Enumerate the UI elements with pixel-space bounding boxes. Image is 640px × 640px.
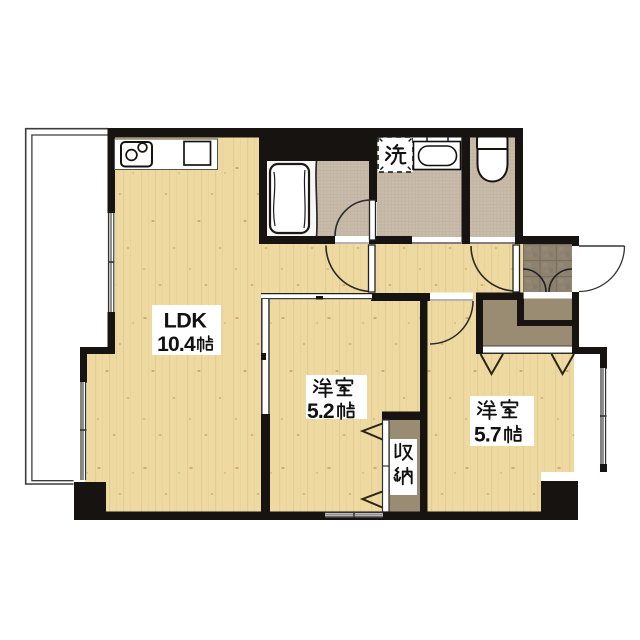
svg-text:5.7: 5.7 xyxy=(474,424,501,447)
svg-text:10.4: 10.4 xyxy=(157,333,196,356)
svg-text:LDK: LDK xyxy=(164,309,208,333)
svg-text:5.2: 5.2 xyxy=(307,400,334,423)
